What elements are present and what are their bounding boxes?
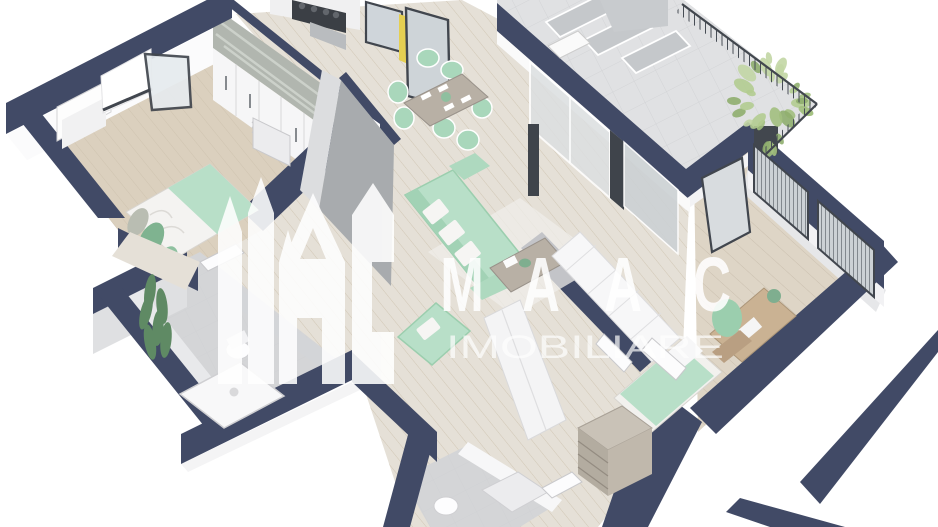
svg-text:C: C: [693, 241, 731, 328]
svg-text:A: A: [522, 241, 560, 328]
svg-text:IMOBILIARE: IMOBILIARE: [446, 329, 724, 365]
svg-text:A: A: [604, 241, 642, 328]
svg-text:M: M: [440, 241, 484, 328]
